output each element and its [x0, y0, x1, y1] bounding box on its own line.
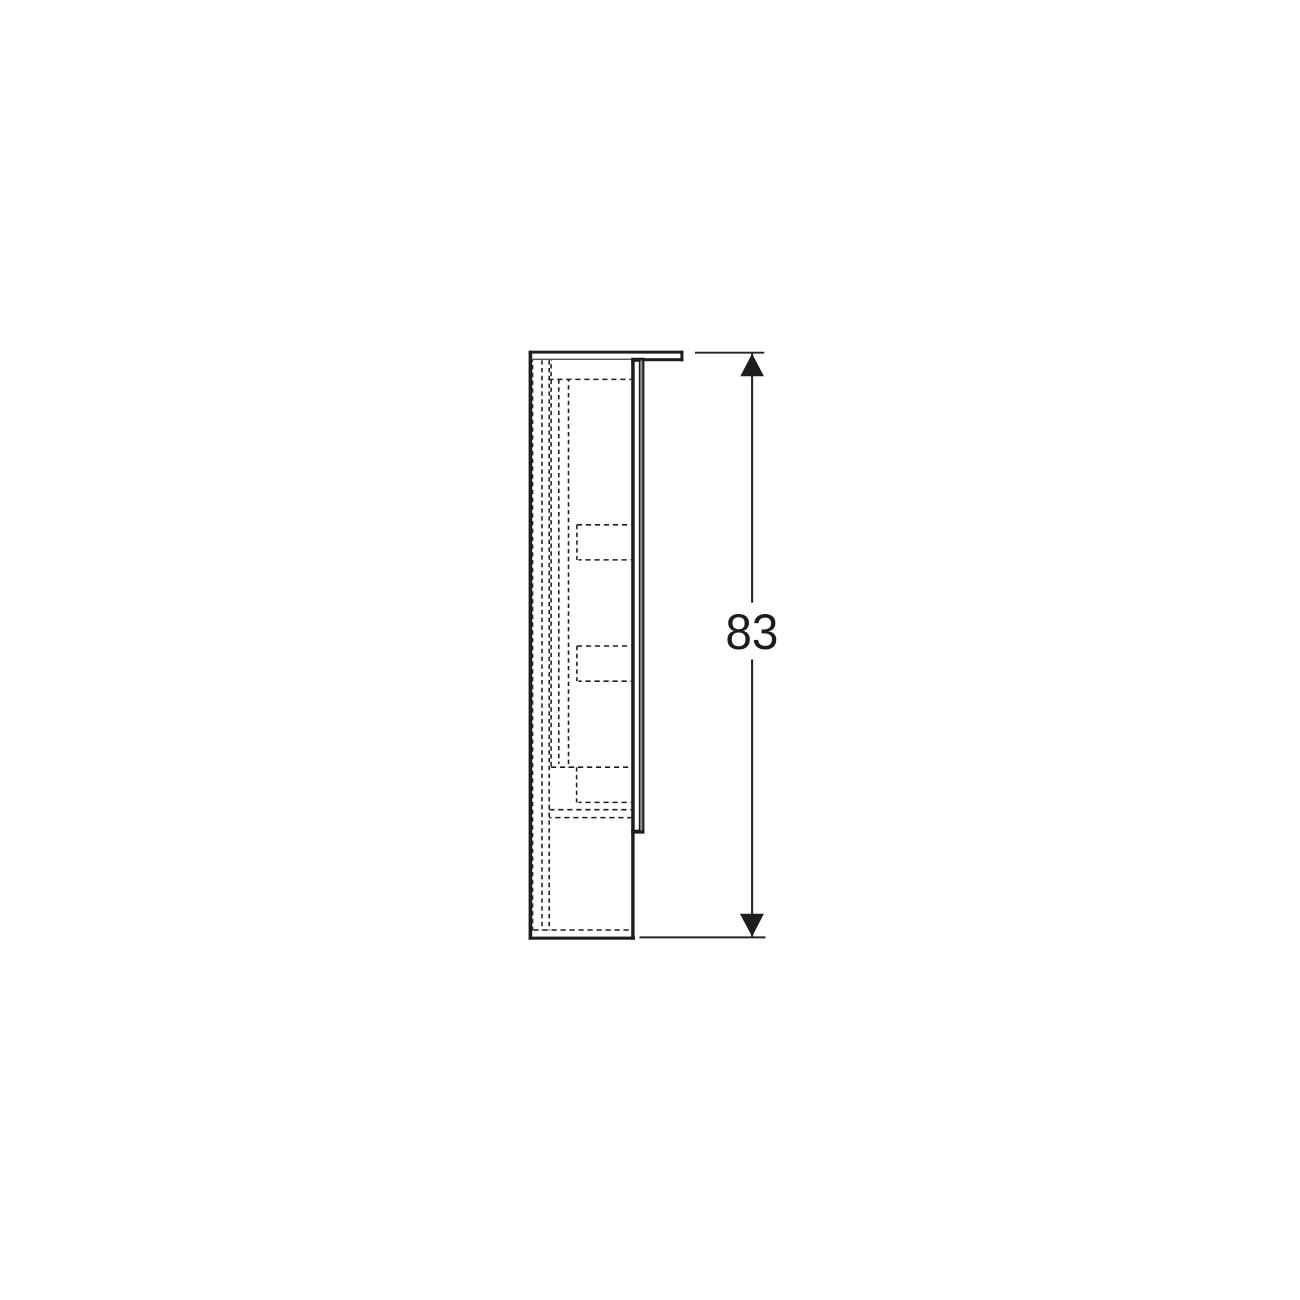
svg-text:83: 83 [725, 603, 778, 660]
